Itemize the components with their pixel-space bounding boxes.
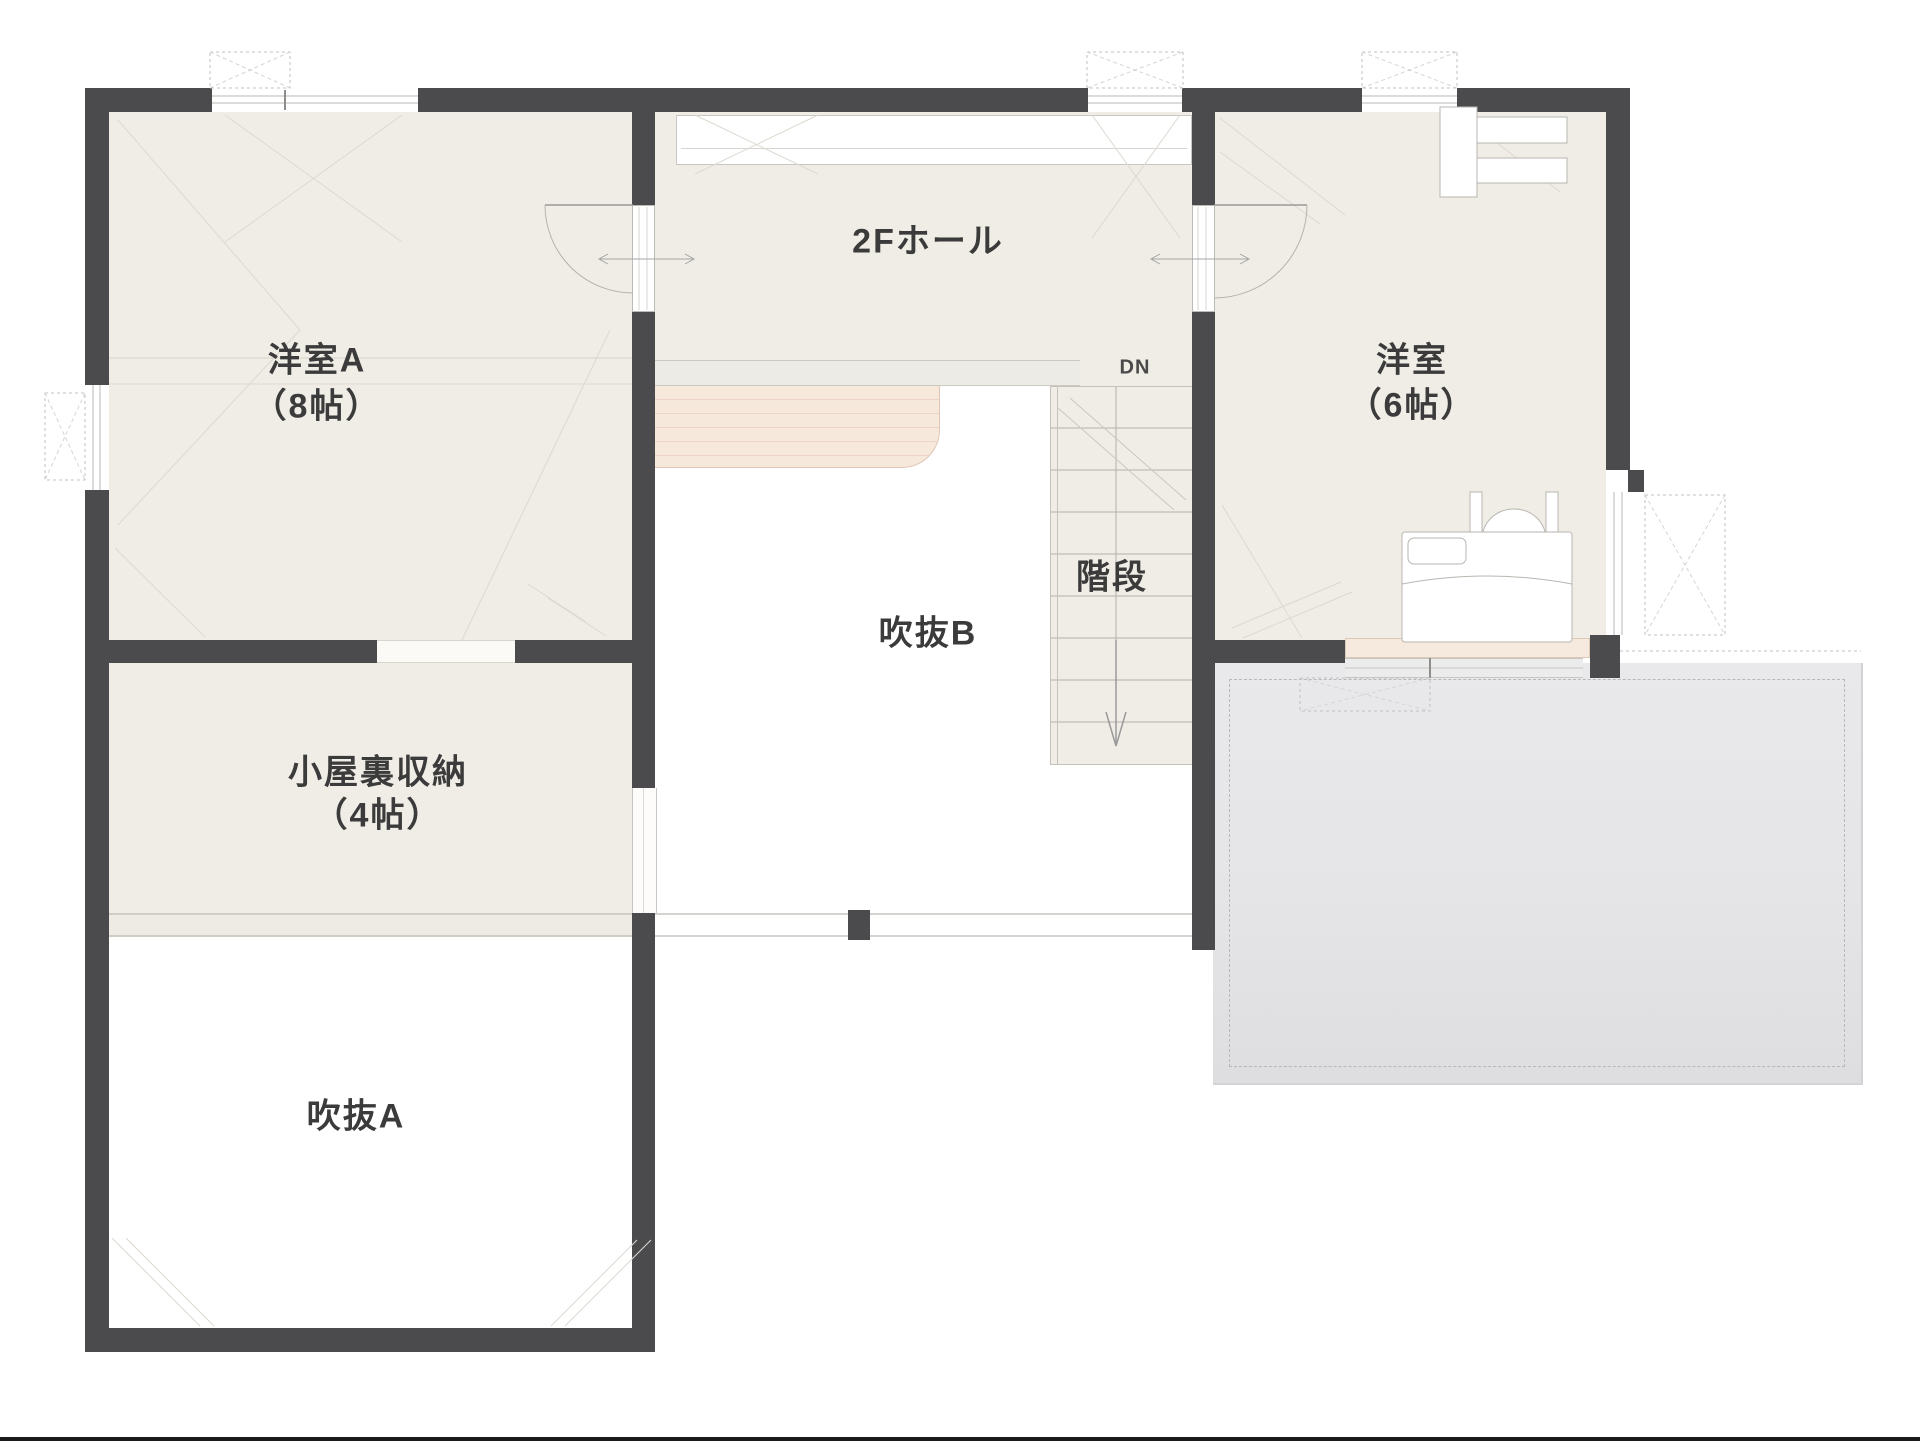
wall-roomA-attic-left <box>109 640 377 663</box>
wall-roomA-hall-mid <box>632 312 655 788</box>
lower-roof-dashed-border <box>1229 679 1845 1067</box>
stairs-label: 階段 <box>1076 550 1148 599</box>
room-a-size-label: （8帖） <box>253 379 382 428</box>
door-room-a <box>632 205 655 312</box>
room-b-label: 洋室 <box>1376 333 1448 382</box>
door-room-b <box>1192 205 1215 312</box>
attic-opening <box>377 640 515 663</box>
window-room-b-bottom-glass <box>1345 658 1583 678</box>
attic-size-label: （4帖） <box>314 788 443 837</box>
wall-roomA-attic-right <box>515 640 632 663</box>
room-a-label: 洋室A <box>268 333 367 382</box>
wall-top-4 <box>1457 88 1630 112</box>
wall-left-upper <box>85 88 109 385</box>
wall-top-2 <box>418 88 1088 112</box>
void-a-label: 吹抜A <box>307 1089 406 1138</box>
attic-label: 小屋裏収納 <box>288 745 468 794</box>
wall-stairs-right <box>1192 312 1215 950</box>
wall-bottom <box>85 1328 655 1352</box>
window-room-a-top <box>212 88 418 112</box>
room-a-floor <box>109 110 632 640</box>
wall-top-3 <box>1182 88 1362 112</box>
floor-plan-2f: 洋室A （8帖） 2Fホール DN 洋室 （6帖） 階段 吹抜B 小屋裏収納 （… <box>0 0 1920 1441</box>
wall-hall-roomB-top <box>1192 112 1215 205</box>
void-b-label: 吹抜B <box>879 606 978 655</box>
page-bottom-rule <box>0 1437 1920 1441</box>
hall-counter-line <box>681 148 1187 149</box>
railing-post <box>848 910 870 940</box>
window-room-a-left <box>85 385 109 490</box>
room-b-size-label: （6帖） <box>1348 378 1477 427</box>
wall-center-lower <box>632 913 655 1352</box>
hall-label: 2Fホール <box>852 214 1004 263</box>
lower-roof-area <box>1213 663 1863 1085</box>
wall-left-lower <box>85 490 109 1352</box>
hall-counter <box>676 115 1192 165</box>
window-hall-top <box>1088 88 1182 112</box>
hall-edge-strip <box>655 360 1080 386</box>
hatched-ledge <box>655 386 940 468</box>
void-b-railing <box>655 913 1192 937</box>
stairs-dn-label: DN <box>1120 357 1151 380</box>
window-room-b-top <box>1362 88 1457 112</box>
wall-roomA-hall-top <box>632 110 655 205</box>
wall-right <box>1606 88 1630 470</box>
attic-void-divider <box>109 913 632 937</box>
wall-roomB-bottom <box>1215 640 1345 663</box>
window-room-b-bottom-sill <box>1345 638 1590 658</box>
wall-right-jut <box>1628 470 1644 492</box>
window-room-b-right <box>1606 492 1632 635</box>
interior-window-attic <box>632 788 657 913</box>
wall-corner-block <box>1590 635 1620 678</box>
